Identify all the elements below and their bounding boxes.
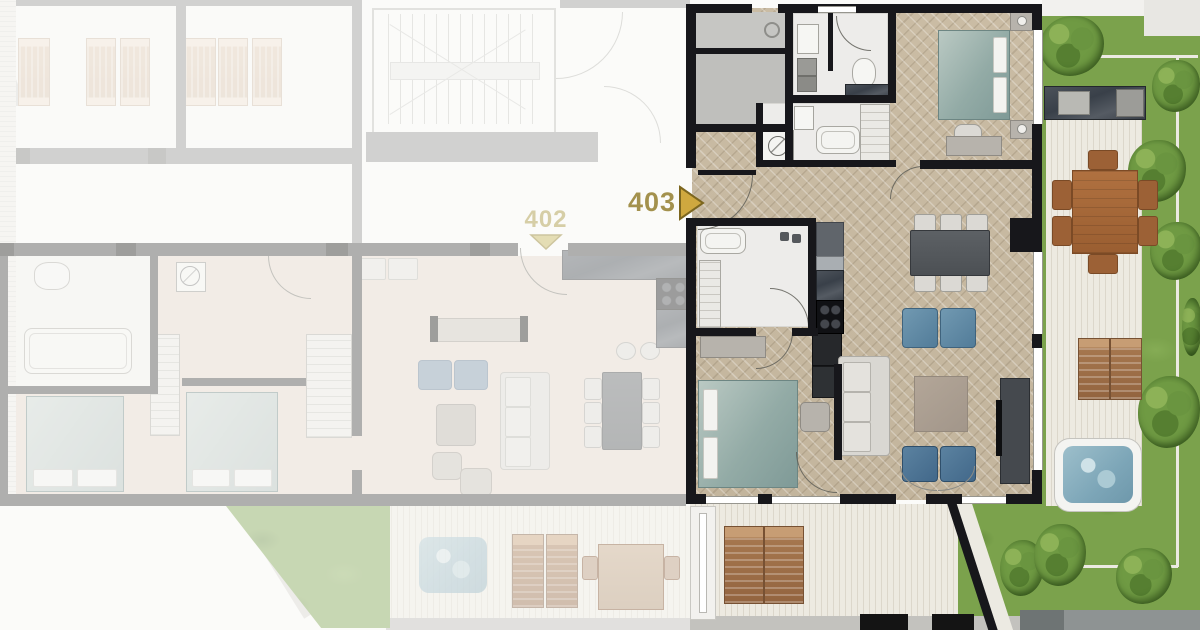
bedroom2-wall bbox=[686, 328, 756, 336]
sofa-cushion bbox=[843, 362, 871, 392]
exterior-wall-left bbox=[686, 4, 696, 168]
exterior-wall-bottom bbox=[1006, 494, 1042, 504]
garden-path bbox=[1176, 55, 1179, 567]
hot-tub-water bbox=[419, 537, 487, 593]
window bbox=[772, 496, 840, 504]
wall bbox=[352, 470, 362, 506]
sofa bbox=[500, 372, 550, 470]
bathtub bbox=[700, 228, 746, 254]
dining-chair bbox=[642, 426, 660, 448]
window bbox=[1033, 30, 1043, 124]
bed bbox=[26, 396, 124, 492]
bedroom1-wall bbox=[920, 160, 1038, 169]
wall bbox=[686, 124, 790, 132]
outdoor-dining-table bbox=[1072, 170, 1138, 254]
wall bbox=[0, 494, 686, 506]
door-arc bbox=[556, 12, 623, 79]
ottoman bbox=[436, 404, 476, 446]
outdoor-chair bbox=[1088, 150, 1118, 170]
bed bbox=[186, 392, 278, 492]
outdoor-chair bbox=[1138, 216, 1158, 246]
outdoor-chair bbox=[1088, 254, 1118, 274]
tv bbox=[996, 400, 1002, 456]
dining-table bbox=[910, 230, 990, 276]
sun-lounger bbox=[1078, 338, 1110, 400]
side-table bbox=[800, 402, 830, 432]
pillow bbox=[192, 469, 230, 487]
sofa-cushion bbox=[505, 407, 531, 437]
dining-chair bbox=[584, 378, 602, 400]
storage-unit bbox=[86, 38, 116, 106]
wall-pier bbox=[0, 243, 14, 256]
bench bbox=[946, 136, 1002, 156]
wall bbox=[756, 160, 896, 167]
hot-tub bbox=[1054, 438, 1142, 512]
unit-403-label: 403 bbox=[628, 189, 676, 216]
sun-lounger bbox=[724, 526, 764, 604]
outdoor-table bbox=[598, 544, 664, 610]
window bbox=[962, 496, 1006, 504]
stove bbox=[816, 300, 844, 334]
storage-unit bbox=[120, 38, 150, 106]
rug bbox=[914, 376, 968, 432]
wall bbox=[0, 243, 8, 506]
sink bbox=[797, 24, 819, 54]
staircase bbox=[372, 8, 556, 136]
wall bbox=[150, 256, 158, 394]
pillow bbox=[703, 389, 718, 431]
wall-pier bbox=[860, 614, 908, 630]
outdoor-chair bbox=[1052, 180, 1072, 210]
wardrobe bbox=[306, 334, 352, 438]
under-stair-wall bbox=[366, 132, 598, 162]
pillow bbox=[234, 469, 272, 487]
dining-chair bbox=[584, 426, 602, 448]
unit-403-pointer-icon bbox=[676, 183, 706, 223]
sink bbox=[34, 262, 70, 290]
appliance bbox=[797, 58, 817, 76]
wall bbox=[352, 250, 362, 436]
wall-pier bbox=[148, 148, 166, 164]
wall bbox=[8, 386, 156, 394]
stair-rail bbox=[699, 513, 707, 613]
window bbox=[1033, 348, 1043, 470]
window bbox=[706, 496, 758, 504]
window bbox=[818, 6, 856, 13]
bathtub bbox=[24, 328, 132, 374]
storage-unit bbox=[252, 38, 282, 106]
entry-door-leaf bbox=[698, 170, 756, 175]
wall bbox=[785, 4, 793, 164]
wall-pier bbox=[116, 243, 136, 256]
bar-stool bbox=[616, 342, 636, 360]
bed bbox=[698, 380, 798, 488]
shaft-handle-icon bbox=[764, 22, 780, 38]
wall-pier bbox=[1010, 218, 1042, 252]
wall-pier bbox=[326, 243, 348, 256]
pillow bbox=[993, 37, 1007, 73]
pouf bbox=[902, 308, 938, 348]
pillow bbox=[703, 437, 718, 479]
sofa-cushion bbox=[388, 258, 418, 280]
lamp bbox=[1017, 124, 1027, 134]
pouf bbox=[432, 452, 462, 480]
wall bbox=[828, 13, 833, 71]
window bbox=[1033, 252, 1043, 334]
wall bbox=[695, 48, 785, 54]
armchair bbox=[418, 360, 452, 390]
bedroom2-wall bbox=[834, 364, 842, 460]
exterior-wall-right bbox=[1032, 124, 1042, 218]
pillow bbox=[993, 77, 1007, 113]
pillow bbox=[77, 469, 117, 487]
wall bbox=[0, 243, 518, 256]
storage-unit bbox=[184, 38, 216, 106]
sofa-cushion bbox=[505, 377, 531, 407]
sun-lounger bbox=[512, 534, 544, 608]
fridge bbox=[816, 222, 844, 258]
console-shelf bbox=[436, 318, 524, 342]
appliance bbox=[797, 76, 817, 92]
lamp bbox=[1017, 16, 1027, 26]
faucet-icon bbox=[780, 232, 789, 241]
bathtub bbox=[816, 126, 860, 154]
counter-slab bbox=[1116, 89, 1144, 117]
sofa-cushion bbox=[843, 422, 871, 452]
tv-console bbox=[1000, 378, 1030, 484]
wall-pier bbox=[14, 148, 30, 164]
exterior-wall-bottom bbox=[840, 494, 896, 504]
wall bbox=[352, 0, 362, 246]
pouf bbox=[940, 308, 976, 348]
terrace-edge bbox=[386, 618, 690, 630]
wall bbox=[568, 243, 690, 256]
armchair bbox=[454, 360, 488, 390]
door-arc bbox=[604, 86, 661, 143]
neighbor-pavement bbox=[1144, 0, 1200, 36]
floor-plan-canvas: 402 bbox=[0, 0, 1200, 630]
upper-floor-area bbox=[0, 0, 690, 246]
bedroom2-wall bbox=[792, 328, 818, 336]
shelf-end bbox=[430, 316, 438, 342]
pillow bbox=[33, 469, 73, 487]
sun-lounger bbox=[546, 534, 578, 608]
sofa bbox=[838, 356, 890, 456]
wall bbox=[888, 4, 896, 103]
dining-chair bbox=[642, 378, 660, 400]
hot-tub-water bbox=[1063, 446, 1133, 503]
corridor-wall bbox=[0, 148, 362, 164]
dining-chair bbox=[642, 402, 660, 424]
dining-chair bbox=[584, 402, 602, 424]
unit-402-marker[interactable]: 402 bbox=[516, 208, 576, 256]
washer-drum-icon bbox=[180, 266, 200, 286]
exterior-wall-bottom bbox=[686, 494, 706, 504]
terrace-side-stair bbox=[690, 506, 716, 620]
unit-402-pointer-icon bbox=[528, 233, 564, 251]
outdoor-chair bbox=[1052, 216, 1072, 246]
dining-table bbox=[602, 372, 642, 450]
storage-unit bbox=[218, 38, 248, 106]
kitchen-counter bbox=[656, 308, 690, 348]
sun-lounger bbox=[1110, 338, 1142, 400]
unit-402-label: 402 bbox=[524, 206, 567, 233]
bath-closet bbox=[699, 260, 721, 328]
shelf-end bbox=[520, 316, 528, 342]
exterior-wall-top bbox=[686, 4, 752, 13]
corridor-top-wall bbox=[560, 0, 690, 8]
wall bbox=[182, 378, 306, 386]
kitchen-counter bbox=[816, 270, 844, 302]
pouf bbox=[460, 468, 492, 496]
stove bbox=[656, 278, 690, 310]
sun-lounger bbox=[764, 526, 804, 604]
pavement-dark bbox=[1020, 610, 1064, 630]
wall-pier bbox=[470, 243, 490, 256]
exterior-wall-right bbox=[1032, 334, 1042, 348]
exterior-wall-bottom bbox=[758, 494, 772, 504]
outdoor-chair bbox=[664, 556, 680, 580]
hall-closet bbox=[860, 104, 890, 162]
lawn-patch bbox=[226, 506, 390, 628]
exterior-wall-right bbox=[1032, 4, 1042, 30]
unit-403-area[interactable] bbox=[686, 0, 1042, 506]
bush bbox=[1182, 298, 1200, 356]
wall bbox=[176, 6, 186, 148]
wall bbox=[790, 95, 896, 103]
wall-pier bbox=[932, 614, 974, 630]
sofa-cushion bbox=[505, 437, 531, 467]
outdoor-chair bbox=[1138, 180, 1158, 210]
wall bbox=[808, 218, 816, 336]
storage-unit bbox=[18, 38, 50, 106]
faucet-icon bbox=[792, 234, 801, 243]
sofa-cushion bbox=[843, 392, 871, 422]
adjacent-units-faded bbox=[0, 0, 690, 630]
wall bbox=[756, 103, 763, 167]
unit-403-marker[interactable]: 403 bbox=[628, 183, 706, 223]
exterior-wall-left bbox=[686, 224, 696, 504]
bbq-grill bbox=[1058, 91, 1090, 115]
bed bbox=[938, 30, 1010, 120]
outdoor-chair bbox=[582, 556, 598, 580]
sink bbox=[794, 106, 814, 130]
